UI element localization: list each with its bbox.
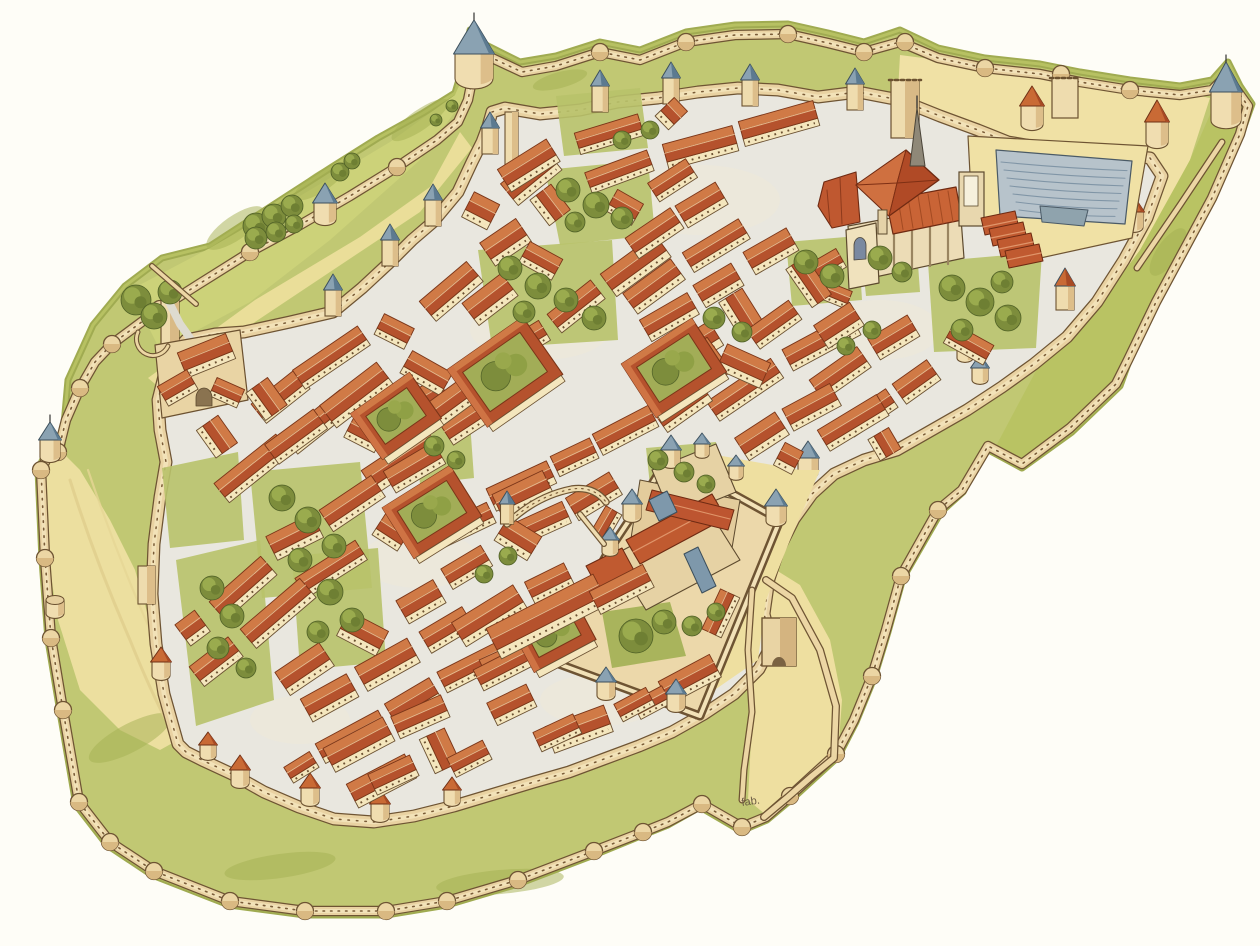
- svg-text:fab.: fab.: [741, 795, 761, 809]
